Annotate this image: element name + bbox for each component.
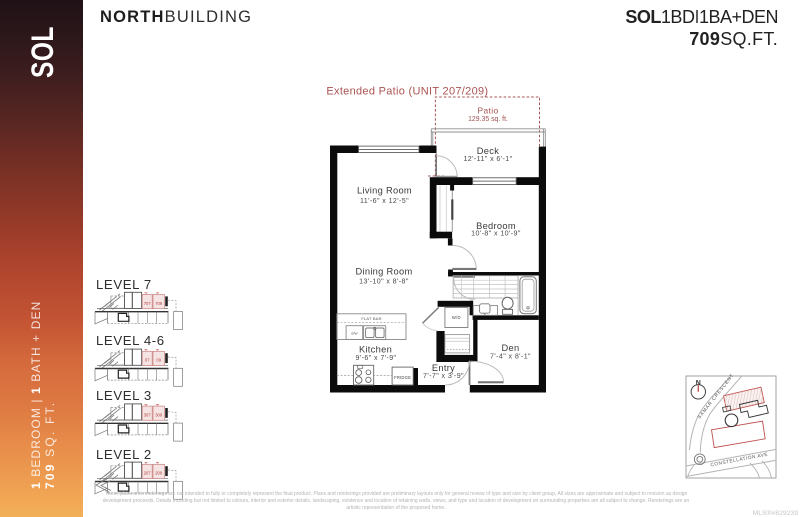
- svg-text:309: 309: [155, 412, 163, 417]
- svg-text:209: 209: [155, 471, 163, 476]
- svg-text:207: 207: [144, 471, 152, 476]
- svg-text:12'-11" x 6'-1": 12'-11" x 6'-1": [463, 155, 512, 163]
- svg-text:Extended Patio (UNIT 207/209): Extended Patio (UNIT 207/209): [326, 85, 488, 97]
- svg-text:7'-7" x 3'-9": 7'-7" x 3'-9": [423, 372, 464, 380]
- svg-text:9'-6" x 7'-9": 9'-6" x 7'-9": [356, 354, 397, 362]
- svg-text:W/D: W/D: [452, 315, 461, 320]
- svg-text:10'-8" x 10'-9": 10'-8" x 10'-9": [471, 229, 521, 237]
- svg-text:307: 307: [144, 412, 152, 417]
- svg-text:707: 707: [144, 301, 152, 306]
- svg-text:Kitchen: Kitchen: [359, 344, 392, 354]
- svg-text:7'-4" x 8'-1": 7'-4" x 8'-1": [490, 352, 531, 360]
- svg-text:11'-6" x 12'-5": 11'-6" x 12'-5": [360, 197, 409, 205]
- svg-text:709: 709: [155, 301, 163, 306]
- svg-text:Living Room: Living Room: [357, 185, 412, 195]
- svg-text:07: 07: [145, 358, 150, 363]
- svg-text:129.35 sq. ft.: 129.35 sq. ft.: [468, 116, 508, 123]
- svg-text:Patio: Patio: [477, 106, 498, 116]
- svg-text:Dining Room: Dining Room: [355, 266, 412, 276]
- svg-text:d/w: d/w: [351, 331, 357, 336]
- svg-text:FRIDGE: FRIDGE: [394, 375, 411, 380]
- svg-text:FLAT BAR: FLAT BAR: [361, 316, 381, 321]
- svg-text:09: 09: [156, 358, 161, 363]
- svg-text:13'-10" x 8'-8": 13'-10" x 8'-8": [359, 278, 409, 286]
